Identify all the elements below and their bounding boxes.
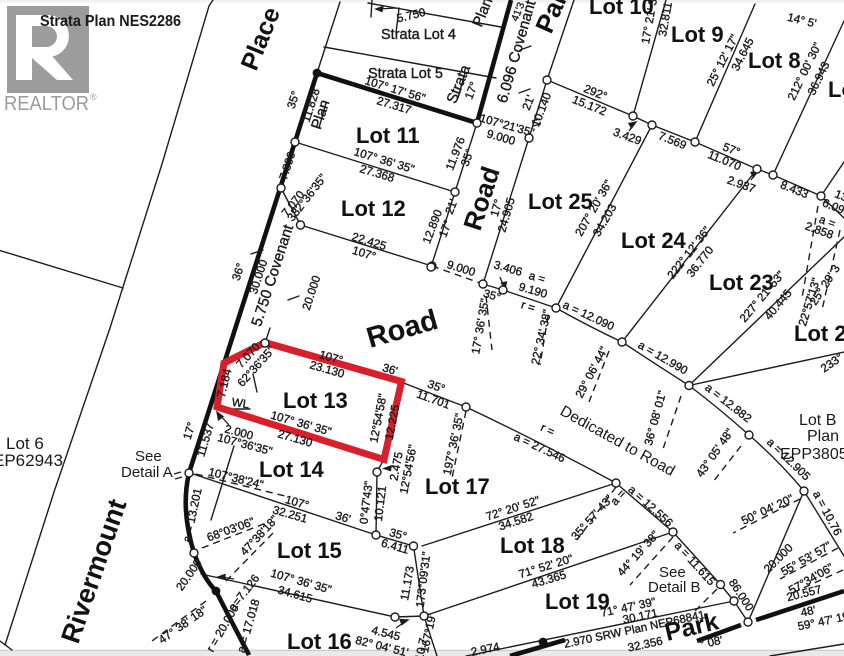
svg-text:Lo: Lo — [828, 77, 844, 102]
svg-text:Detail A: Detail A — [121, 464, 173, 481]
svg-text:Lot 9: Lot 9 — [671, 22, 724, 47]
svg-text:See: See — [135, 448, 162, 465]
svg-text:Lot 17: Lot 17 — [425, 474, 490, 499]
svg-text:REALTOR: REALTOR — [4, 92, 89, 115]
svg-text:Lot 15: Lot 15 — [277, 538, 342, 563]
svg-text:Lot 25: Lot 25 — [528, 189, 593, 214]
svg-text:®: ® — [90, 92, 97, 102]
svg-text:Lot 14: Lot 14 — [259, 457, 325, 482]
svg-text:Lot 16: Lot 16 — [287, 629, 352, 654]
svg-text:Plan: Plan — [807, 428, 839, 445]
svg-text:Lot 13: Lot 13 — [283, 388, 348, 413]
svg-text:Detail B: Detail B — [648, 579, 701, 596]
svg-text:Lot B: Lot B — [799, 412, 836, 429]
svg-text:EP62943: EP62943 — [0, 451, 63, 470]
svg-text:Strata Plan NES2286: Strata Plan NES2286 — [40, 13, 181, 30]
svg-text:Lot 24: Lot 24 — [621, 228, 687, 253]
svg-text:Lot 18: Lot 18 — [500, 533, 565, 558]
svg-text:WL: WL — [231, 396, 251, 411]
svg-text:Strata Lot 4: Strata Lot 4 — [381, 27, 456, 43]
svg-text:Lot 11: Lot 11 — [356, 123, 420, 148]
svg-text:Lot 12: Lot 12 — [341, 196, 406, 221]
svg-text:Lot 8: Lot 8 — [748, 48, 801, 73]
